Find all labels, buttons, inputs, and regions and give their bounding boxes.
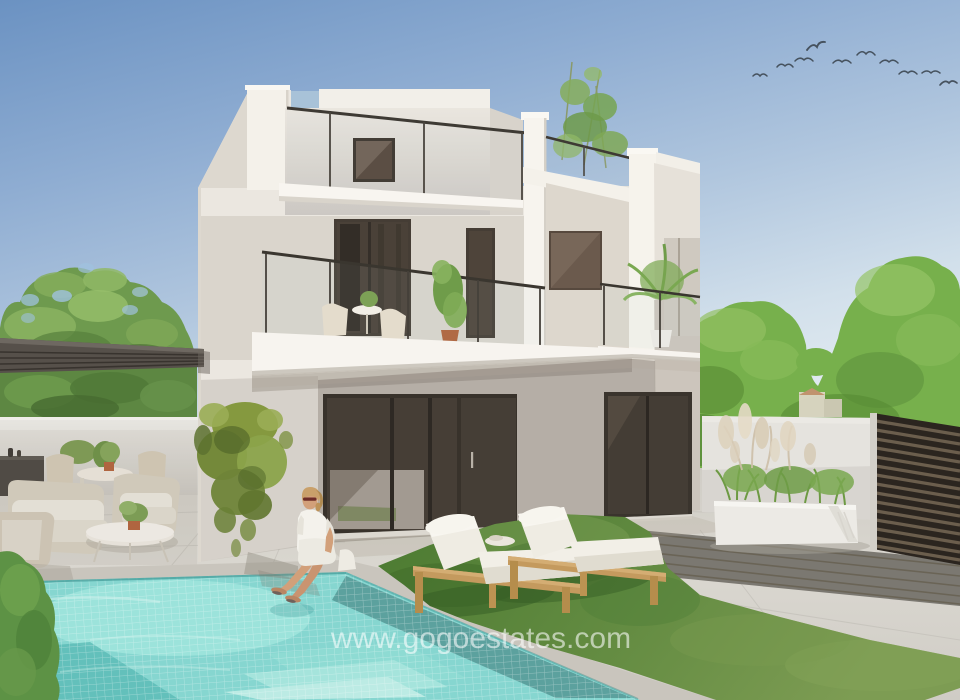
svg-text:www.gogoestates.com: www.gogoestates.com — [330, 622, 631, 655]
